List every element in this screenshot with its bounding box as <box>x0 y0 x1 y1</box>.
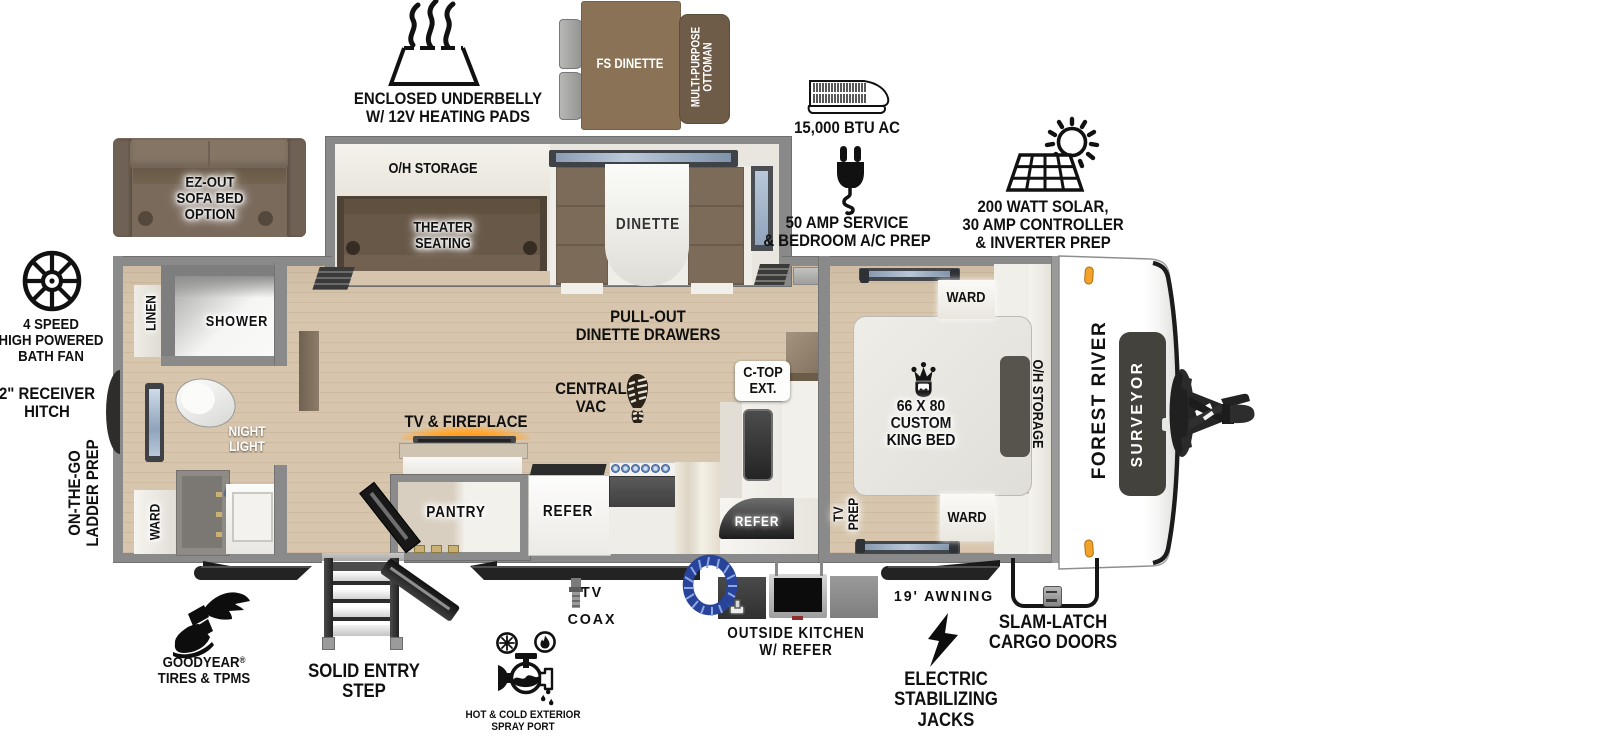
svg-text:SURVEYOR: SURVEYOR <box>1129 361 1146 468</box>
svg-text:FOREST RIVER: FOREST RIVER <box>1089 321 1110 479</box>
